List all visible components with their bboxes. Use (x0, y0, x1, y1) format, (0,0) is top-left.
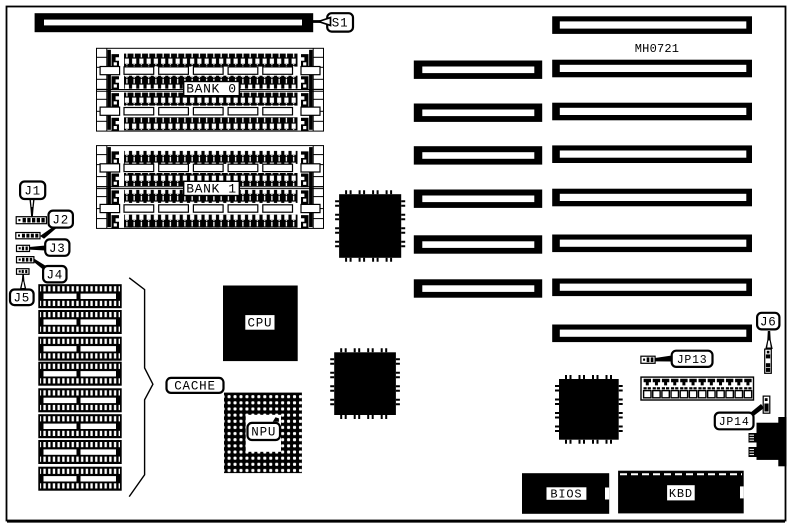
svg-text:MH0721: MH0721 (635, 42, 679, 56)
svg-text:CPU: CPU (247, 317, 272, 331)
svg-text:NPU: NPU (251, 426, 276, 440)
svg-text:JP14: JP14 (719, 416, 750, 429)
svg-text:J5: J5 (13, 292, 30, 306)
svg-text:J3: J3 (49, 242, 66, 256)
svg-text:J4: J4 (46, 268, 63, 282)
svg-text:BANK 1: BANK 1 (186, 182, 236, 197)
svg-text:JP13: JP13 (677, 354, 708, 367)
svg-text:CACHE: CACHE (174, 380, 216, 394)
svg-text:J1: J1 (24, 184, 41, 198)
svg-text:BIOS: BIOS (550, 487, 582, 501)
svg-text:BANK 0: BANK 0 (186, 82, 236, 97)
svg-text:KBD: KBD (669, 487, 693, 501)
svg-text:J6: J6 (760, 315, 777, 329)
svg-text:S1: S1 (332, 17, 349, 31)
svg-text:J2: J2 (52, 213, 69, 227)
